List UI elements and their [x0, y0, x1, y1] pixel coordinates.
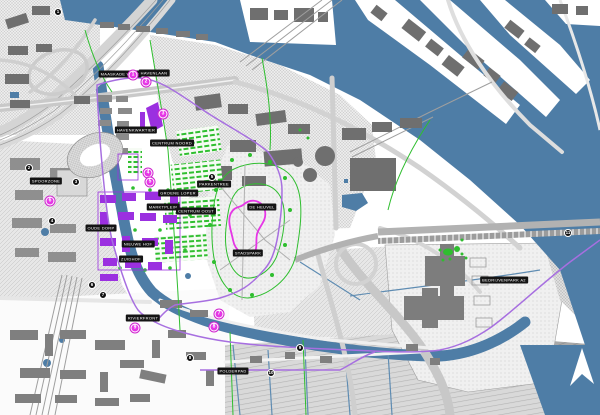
poi-marker-black[interactable]: 11: [564, 229, 572, 237]
poi-marker-magenta[interactable]: 1: [129, 71, 138, 80]
poi-marker-black[interactable]: 10: [267, 369, 275, 377]
map-label: STADSPARK: [233, 250, 263, 257]
poi-marker-black[interactable]: 5: [208, 173, 216, 181]
map-canvas: [0, 0, 600, 415]
map-label: SPOORZONE: [30, 178, 62, 185]
poi-marker-black[interactable]: 7: [99, 291, 107, 299]
poi-marker-magenta[interactable]: 5: [146, 178, 155, 187]
map-label: BEDRIJVENPARK A2: [480, 277, 528, 284]
map-label: NIEUWE HOF: [122, 241, 155, 248]
map-label: POLDERPAD: [217, 368, 248, 375]
poi-marker-black[interactable]: 4: [48, 217, 56, 225]
map-label: CENTRUM NOORD: [150, 140, 194, 147]
poi-marker-magenta[interactable]: 7: [215, 310, 224, 319]
poi-marker-magenta[interactable]: 3: [159, 110, 168, 119]
map-label: RIVIERFRONT: [126, 315, 160, 322]
poi-marker-magenta[interactable]: 2: [142, 78, 151, 87]
map-viewport: MAASKADE WEST HAVENLAAN HAVENKWARTIER CE…: [0, 0, 600, 415]
map-label: HAVENKWARTIER: [115, 127, 157, 134]
poi-marker-black[interactable]: 8: [186, 354, 194, 362]
map-label: GROENE LOPER: [158, 190, 198, 197]
poi-marker-magenta[interactable]: 9: [131, 324, 140, 333]
map-label: PARKENTREE: [197, 181, 231, 188]
poi-marker-black[interactable]: 2: [25, 164, 33, 172]
map-label: ZUIDHOF: [119, 256, 143, 263]
map-label: DE HEUVEL: [247, 204, 276, 211]
poi-marker-black[interactable]: 9: [296, 344, 304, 352]
poi-marker-magenta[interactable]: 8: [210, 323, 219, 332]
map-label: CENTRUM OOST: [176, 208, 216, 215]
poi-marker-black[interactable]: 1: [54, 8, 62, 16]
poi-marker-magenta[interactable]: 4: [144, 169, 153, 178]
map-label: HAVENLAAN: [139, 70, 170, 77]
map-label: OUDE DORP: [86, 225, 117, 232]
poi-marker-black[interactable]: 3: [72, 178, 80, 186]
map-label: MARKTPLEIN: [147, 204, 180, 211]
poi-marker-magenta[interactable]: 6: [46, 197, 55, 206]
poi-marker-black[interactable]: 6: [88, 281, 96, 289]
